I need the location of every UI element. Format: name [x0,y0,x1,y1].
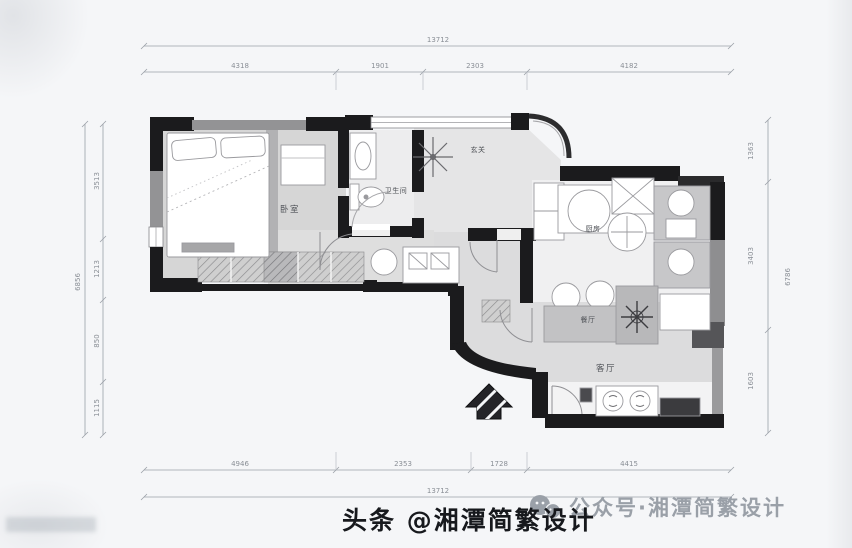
dining-table [544,306,618,342]
dining-label: 餐厅 [581,315,596,324]
dim-top-3: 2303 [466,62,484,70]
dim-left-3: 850 [93,334,101,347]
dim-left-1: 3513 [93,172,101,190]
hall-counter [403,247,459,283]
dim-bottom-2: 2353 [394,460,412,468]
dim-right-total: 6786 [784,268,792,286]
plant [616,286,658,344]
appliance-box-1 [666,219,696,238]
washbasin [350,133,376,179]
foyer-label: 玄关 [471,145,486,154]
bedroom-label: 卧室 [280,204,300,215]
dim-left-2: 1213 [93,260,101,278]
dim-left-4: 1115 [93,399,101,417]
dim-right-1: 1363 [747,142,755,160]
dim-right-2: 3403 [747,247,755,265]
side-table [371,249,397,275]
dim-bottom-total: 13712 [427,487,449,495]
basin-right-2 [668,249,694,275]
sink [608,213,646,251]
dim-bottom-3: 1728 [490,460,508,468]
kitchen-label: 厨房 [586,224,601,233]
dim-top-4: 4182 [620,62,638,70]
wechat-watermark-label: 公众号·湘潭简繁设计 [569,492,786,522]
small-appliance [580,388,592,402]
dark-appliance [660,398,700,416]
floor-mat [482,300,510,322]
toutiao-watermark: 头条 @湘潭简繁设计 [342,501,596,537]
dim-bottom-4: 4415 [620,460,638,468]
dim-right-3: 1603 [747,372,755,390]
dim-left-total: 6856 [74,273,82,291]
dim-top-total: 13712 [427,36,449,44]
desk [281,145,325,185]
entry-arrow-icon [466,384,512,424]
floorplan-drawing: 卧室 卫生间 玄关 厨房 餐厅 客厅 [0,0,852,548]
stove [612,178,654,214]
cabinet [660,294,710,330]
dim-top-2: 1901 [371,62,389,70]
bathroom-label: 卫生间 [385,186,408,195]
dim-top-1: 4318 [231,62,249,70]
dining-chair-2 [586,281,614,309]
living-label: 客厅 [596,363,616,374]
gas-stove [596,386,658,416]
bed-bench [182,243,234,252]
dim-bottom-1: 4946 [231,460,249,468]
ceiling-fan-icon [413,137,453,177]
corner-watermark [6,517,96,532]
floorplan-page: 卧室 卫生间 玄关 厨房 餐厅 客厅 [0,0,852,548]
basin-right-1 [668,190,694,216]
bed [167,133,269,257]
